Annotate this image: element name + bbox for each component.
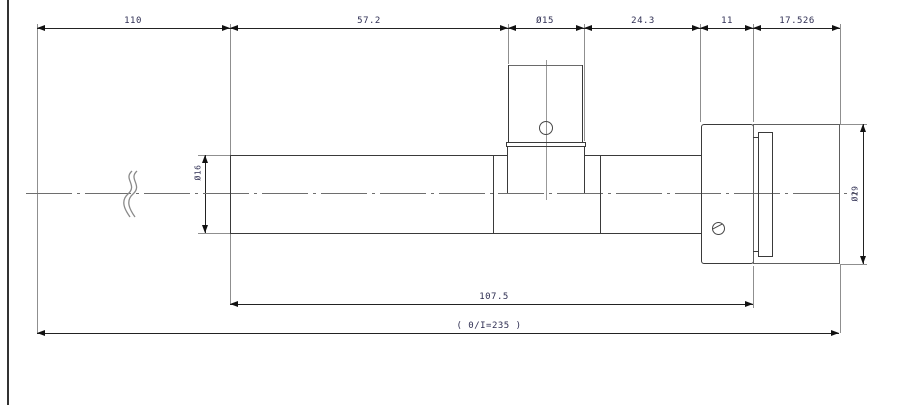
dimension-line-dia16 <box>205 155 206 233</box>
boss-socket-left-edge <box>507 147 508 193</box>
arrow-icon <box>37 330 45 336</box>
engineering-drawing: 110 57.2 Ø15 24.3 11 17.526 107.5 ( 0/I=… <box>0 0 901 405</box>
dim-label-17-526: 17.526 <box>757 16 837 27</box>
arrow-icon <box>584 25 592 31</box>
boss-left-edge <box>508 65 509 142</box>
extension-line-right-end-top <box>840 24 841 124</box>
extension-line-left-end <box>37 24 38 333</box>
arrow-icon <box>202 225 208 233</box>
tube-section-divider-right <box>600 155 601 233</box>
dimension-line-dia29 <box>863 124 864 264</box>
dim-label-11: 11 <box>687 16 767 27</box>
dim-label-dia16: Ø16 <box>193 151 204 195</box>
dimension-line-107-5 <box>230 304 753 305</box>
arrow-icon <box>860 256 866 264</box>
dim-label-dia15: Ø15 <box>505 16 585 27</box>
dim-label-110: 110 <box>93 16 173 27</box>
arrow-icon <box>860 124 866 132</box>
dim-label-24-3: 24.3 <box>603 16 683 27</box>
dim-label-57-2: 57.2 <box>329 16 409 27</box>
boss-collar <box>506 142 586 147</box>
tube-left-end <box>230 155 231 233</box>
dimension-line-top-chain <box>37 28 840 29</box>
dimension-line-overall-235 <box>37 333 839 334</box>
extension-line-dia16-bottom <box>198 233 230 234</box>
boss-socket-right-edge <box>584 147 585 193</box>
arrow-icon <box>745 301 753 307</box>
arrow-icon <box>37 25 45 31</box>
groove-lip-top <box>753 137 758 138</box>
pipe-break-squiggle-icon <box>117 170 147 218</box>
tube-bottom-edge <box>230 233 701 234</box>
flange-block <box>701 124 754 264</box>
arrow-icon <box>230 301 238 307</box>
extension-line-flange-right-bottom <box>753 266 754 308</box>
tube-top-edge-right <box>584 155 701 156</box>
tube-section-divider-left <box>493 155 494 233</box>
extension-line-boss-right <box>584 24 585 141</box>
boss-right-edge <box>582 65 583 142</box>
extension-line-dia29-bottom <box>840 264 867 265</box>
boss-center-hole <box>539 121 553 135</box>
dim-label-overall: ( 0/I=235 ) <box>449 321 529 332</box>
arrow-icon <box>831 330 839 336</box>
groove-lip-bottom <box>753 251 758 252</box>
boss-top-edge <box>508 65 582 66</box>
extension-line-right-end-bottom <box>840 264 841 333</box>
sheet-frame-left-border <box>7 0 9 405</box>
arrow-icon <box>222 25 230 31</box>
dim-label-107-5: 107.5 <box>454 292 534 303</box>
groove-disc <box>758 132 773 257</box>
extension-line-flange-right-top <box>753 24 754 122</box>
extension-line-flange-left <box>700 24 701 122</box>
dim-label-dia29: Ø29 <box>850 172 861 216</box>
arrow-icon <box>230 25 238 31</box>
tube-top-edge-left <box>230 155 507 156</box>
